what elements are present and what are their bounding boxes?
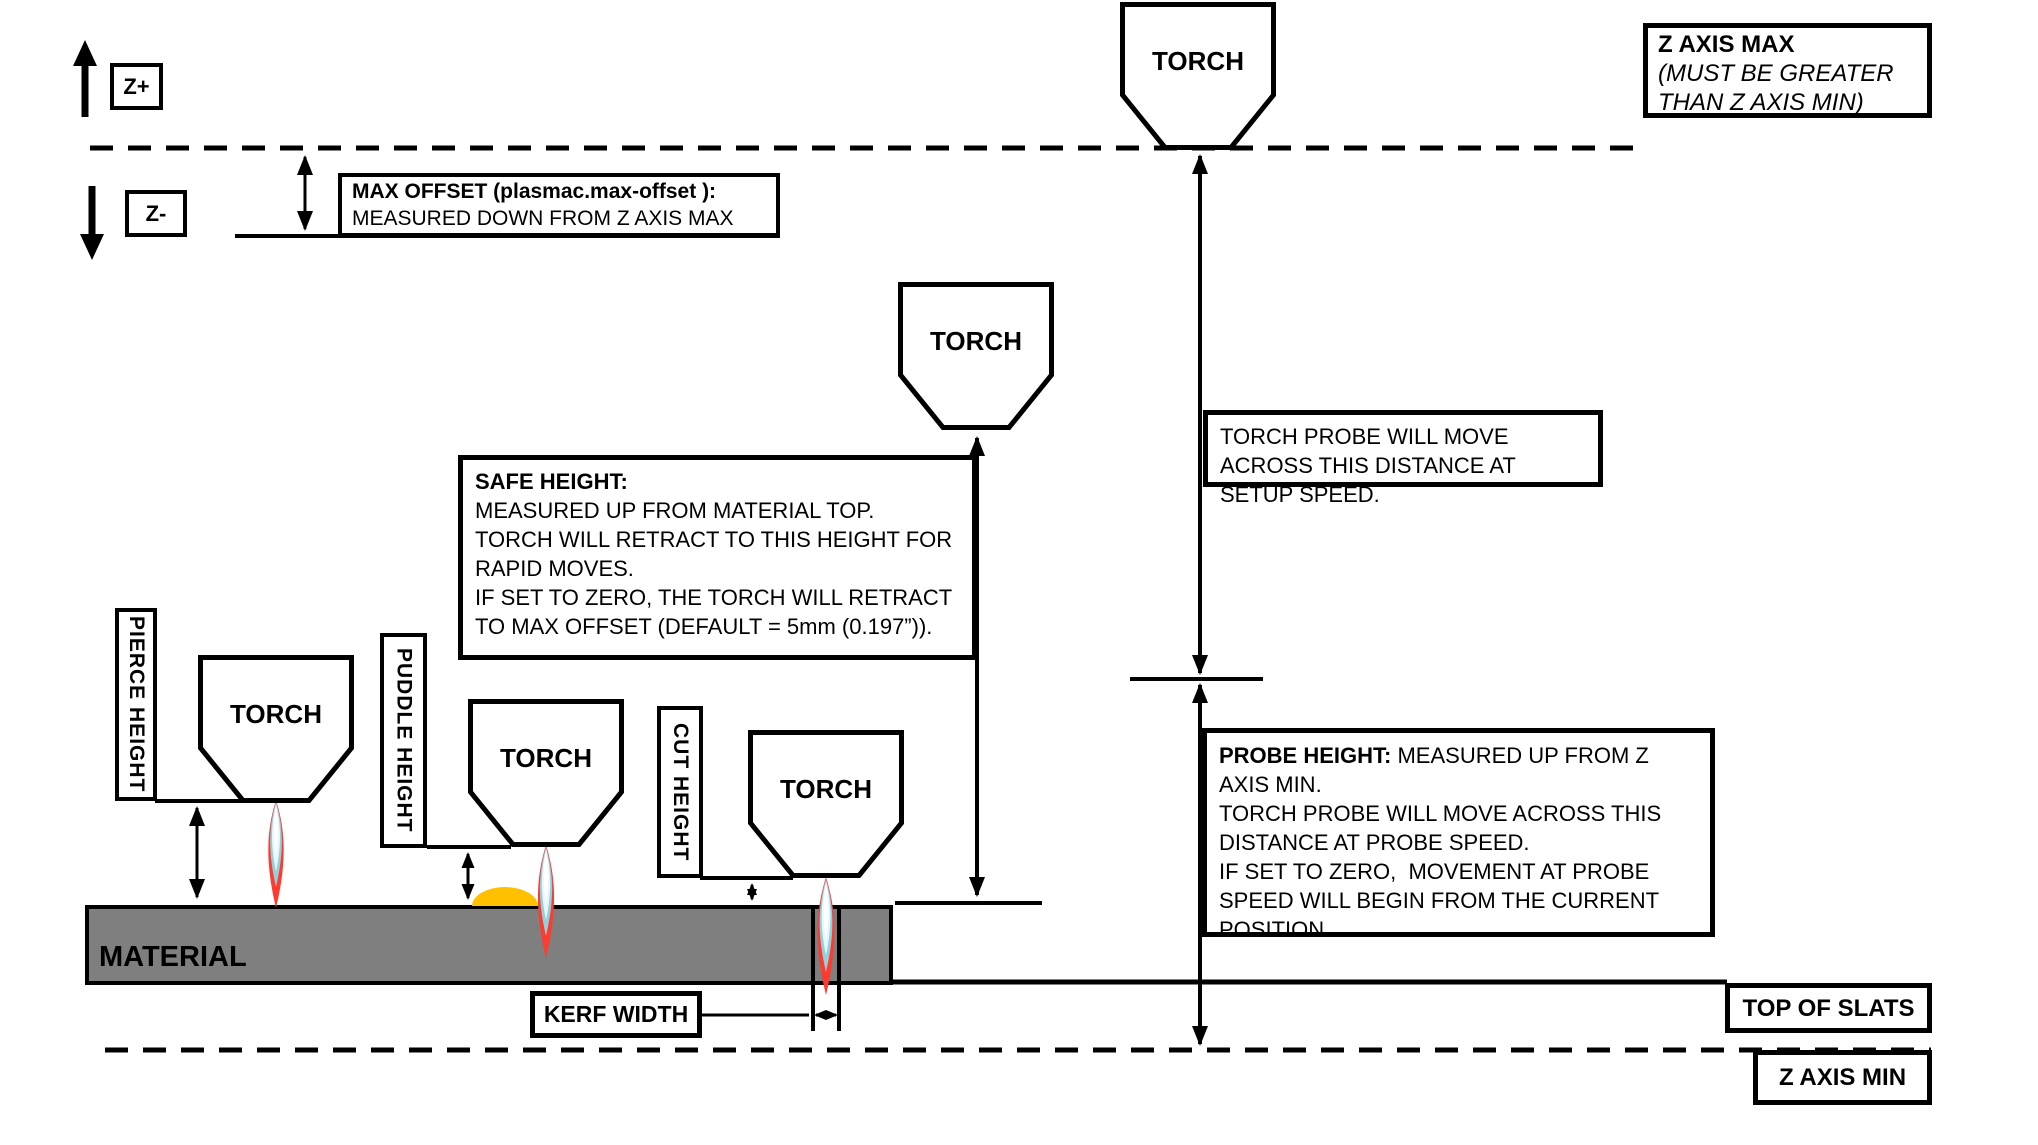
max-offset-title: MAX OFFSET (plasmac.max-offset ):: [352, 178, 766, 205]
z-plus-label: Z+: [123, 74, 149, 100]
pierce-flame-icon: [268, 800, 283, 908]
torch-label: TORCH: [468, 743, 624, 774]
z-minus-label: Z-: [146, 201, 167, 227]
torch-label: TORCH: [748, 774, 904, 805]
pierce-height-label-box: PIERCE HEIGHT: [115, 608, 157, 801]
torch-label: TORCH: [898, 326, 1054, 357]
probe-height-title: PROBE HEIGHT:: [1219, 743, 1391, 768]
max-offset-body: MEASURED DOWN FROM Z AXIS MAX: [352, 205, 766, 232]
torch-at-pierce-height: TORCH: [198, 655, 354, 803]
max-offset-note-box: MAX OFFSET (plasmac.max-offset ): MEASUR…: [338, 173, 780, 237]
safe-height-title: SAFE HEIGHT:: [475, 467, 960, 496]
puddle-height-label: PUDDLE HEIGHT: [392, 648, 416, 833]
kerf-width-label: KERF WIDTH: [544, 1001, 688, 1028]
kerf-width-label-box: KERF WIDTH: [530, 991, 702, 1038]
probe-height-body: MEASURED UP FROM Z AXIS MIN. TORCH PROBE…: [1219, 743, 1667, 942]
safe-height-body: MEASURED UP FROM MATERIAL TOP. TORCH WIL…: [475, 496, 960, 641]
top-of-slats-label: TOP OF SLATS: [1742, 994, 1914, 1023]
safe-height-note-box: SAFE HEIGHT: MEASURED UP FROM MATERIAL T…: [458, 455, 977, 660]
diagram-lines-layer: [0, 0, 2038, 1145]
torch-at-cut-height: TORCH: [748, 730, 904, 878]
z-axis-max-subtitle: (MUST BE GREATER THAN Z AXIS MIN): [1658, 59, 1917, 117]
cut-height-label: CUT HEIGHT: [668, 723, 692, 861]
torch-at-puddle-height: TORCH: [468, 699, 624, 847]
z-axis-min-label-box: Z AXIS MIN: [1753, 1050, 1932, 1105]
z-plus-label-box: Z+: [110, 63, 163, 110]
z-axis-min-label: Z AXIS MIN: [1779, 1063, 1906, 1092]
setup-speed-note-box: TORCH PROBE WILL MOVE ACROSS THIS DISTAN…: [1203, 410, 1603, 487]
z-axis-max-title: Z AXIS MAX: [1658, 30, 1917, 59]
cut-flame-icon: [818, 877, 835, 995]
puddle-height-label-box: PUDDLE HEIGHT: [380, 633, 427, 848]
setup-speed-body: TORCH PROBE WILL MOVE ACROSS THIS DISTAN…: [1220, 422, 1586, 509]
pierce-height-label: PIERCE HEIGHT: [124, 616, 148, 792]
torch-label: TORCH: [198, 699, 354, 730]
molten-puddle-shape: [472, 887, 538, 906]
probe-height-note-box: PROBE HEIGHT: MEASURED UP FROM Z AXIS MI…: [1202, 728, 1715, 937]
torch-at-safe-height: TORCH: [898, 282, 1054, 430]
cut-height-label-box: CUT HEIGHT: [657, 706, 703, 878]
top-of-slats-label-box: TOP OF SLATS: [1725, 983, 1932, 1033]
torch-at-z-max: TORCH: [1120, 2, 1276, 150]
z-axis-max-note-box: Z AXIS MAX (MUST BE GREATER THAN Z AXIS …: [1643, 23, 1932, 118]
z-minus-label-box: Z-: [125, 190, 187, 237]
puddle-flame-icon: [538, 845, 554, 958]
plasmac-height-diagram: MATERIAL: [0, 0, 2038, 1145]
torch-label: TORCH: [1120, 46, 1276, 77]
